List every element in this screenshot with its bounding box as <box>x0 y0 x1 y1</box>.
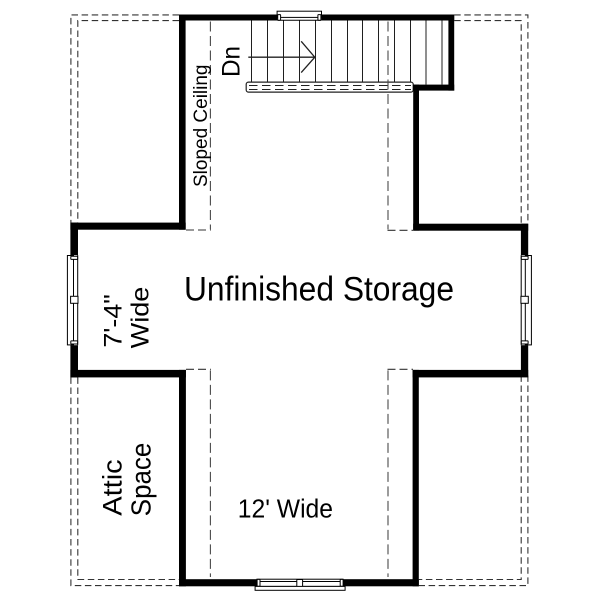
svg-text:12' Wide: 12' Wide <box>238 494 333 524</box>
svg-text:Space: Space <box>125 443 156 517</box>
svg-text:Wide: Wide <box>126 287 154 349</box>
svg-text:Attic: Attic <box>97 459 128 516</box>
svg-text:Sloped Ceiling: Sloped Ceiling <box>190 65 212 188</box>
svg-text:7'-4": 7'-4" <box>100 294 128 347</box>
svg-text:Dn: Dn <box>218 46 246 77</box>
svg-text:Unfinished Storage: Unfinished Storage <box>184 271 454 309</box>
